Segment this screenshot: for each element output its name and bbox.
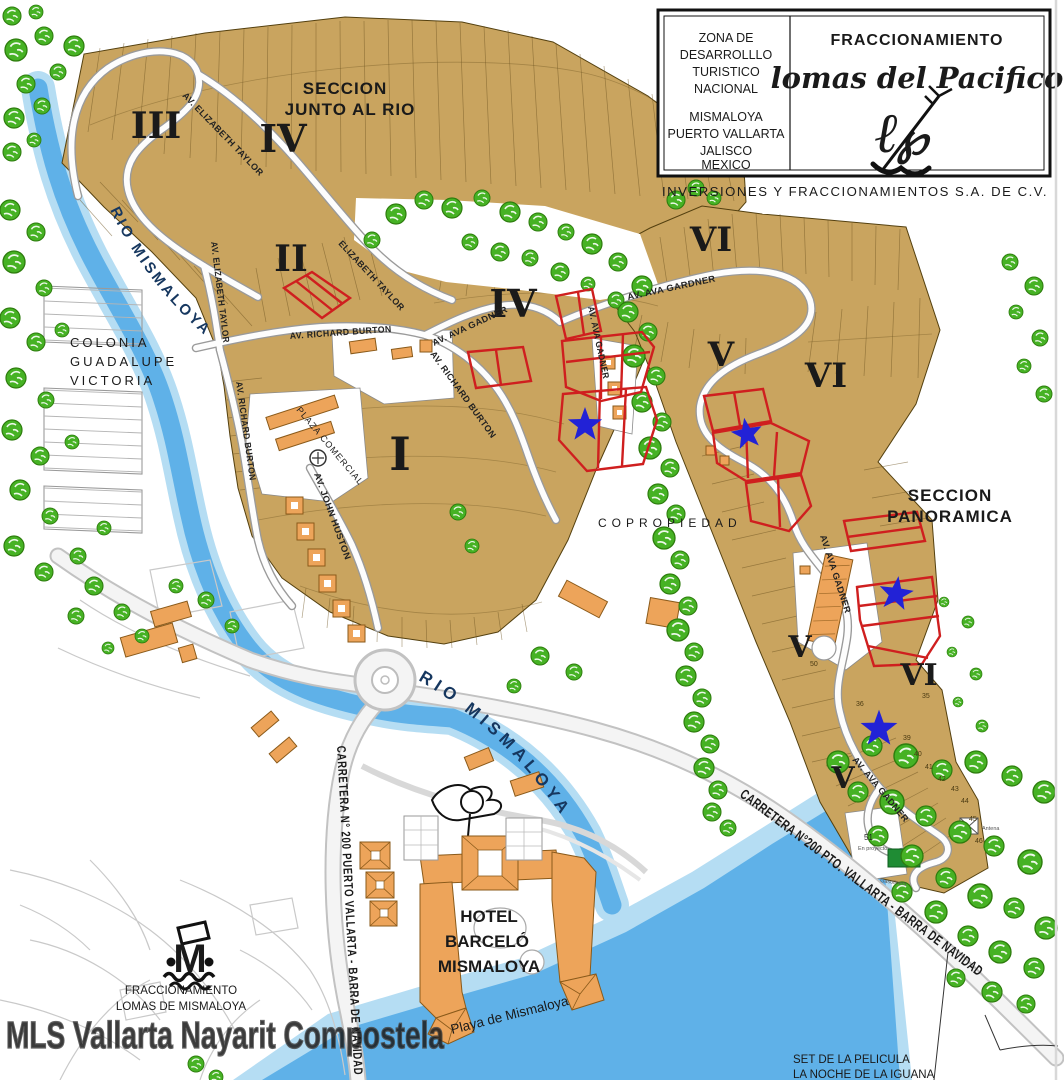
tree-icon xyxy=(209,1070,223,1080)
tree-icon xyxy=(1004,898,1024,918)
lot-number: 36 xyxy=(856,701,864,708)
tree-icon xyxy=(1018,850,1042,874)
tree-icon xyxy=(1024,958,1044,978)
roundabout xyxy=(355,650,415,710)
tree-icon xyxy=(701,735,719,753)
tree-icon xyxy=(27,333,45,351)
title-block: ZONA DE DESARROLLLO TURISTICO NACIONAL M… xyxy=(658,10,1063,199)
lot-number: 45 xyxy=(969,816,977,823)
numeral-v-low: V xyxy=(830,761,855,796)
tree-icon xyxy=(1002,254,1018,270)
tree-icon xyxy=(925,901,947,923)
tree-icon xyxy=(551,263,569,281)
hotel-east-wing xyxy=(552,852,596,982)
section-panoramica-title2: PANORAMICA xyxy=(887,507,1013,526)
tree-icon xyxy=(500,202,520,222)
company-name: INVERSIONES Y FRACCIONAMIENTOS S.A. DE C… xyxy=(662,184,1048,199)
tree-icon xyxy=(2,420,22,440)
lot-number: 44 xyxy=(961,798,969,805)
tree-icon xyxy=(953,697,963,707)
tree-icon xyxy=(694,758,714,778)
tree-icon xyxy=(442,198,462,218)
zone-line: NACIONAL xyxy=(694,82,758,96)
tree-icon xyxy=(529,213,547,231)
tree-icon xyxy=(947,969,965,987)
section-panoramica-title: SECCION xyxy=(908,486,992,505)
tree-icon xyxy=(68,608,84,624)
tree-icon xyxy=(65,435,79,449)
colonia-label-3: VICTORIA xyxy=(70,373,155,388)
tree-icon xyxy=(462,234,478,250)
lot-51-note: En proyecto xyxy=(858,846,887,852)
movie-set-label-1: SET DE LA PELICULA xyxy=(793,1054,910,1066)
tree-icon xyxy=(3,251,25,273)
tree-icon xyxy=(35,563,53,581)
tree-icon xyxy=(684,712,704,732)
subdivision-map: SECCION JUNTO AL RIO SECCION PANORAMICA … xyxy=(0,0,1064,1080)
tree-icon xyxy=(450,504,466,520)
tree-icon xyxy=(3,143,21,161)
tree-icon xyxy=(3,7,21,25)
tree-icon xyxy=(660,574,680,594)
tree-icon xyxy=(50,64,66,80)
lot-number: 35 xyxy=(922,693,930,700)
tree-icon xyxy=(661,459,679,477)
tree-icon xyxy=(522,250,538,266)
hotel-label-2: BARCELÓ xyxy=(445,932,529,951)
movie-set-label-2: LA NOCHE DE LA IGUANA xyxy=(793,1069,935,1080)
tree-icon xyxy=(5,39,27,61)
tree-icon xyxy=(386,204,406,224)
tree-icon xyxy=(27,223,45,241)
tree-icon xyxy=(693,689,711,707)
numeral-iv-top: IV xyxy=(259,116,308,161)
development-name-script: lomas del Pacifico xyxy=(771,61,1064,95)
tree-icon xyxy=(936,868,956,888)
tree-icon xyxy=(465,539,479,553)
frac-mismaloya-label-2: LOMAS DE MISMALOYA xyxy=(116,1001,246,1013)
tree-icon xyxy=(647,367,665,385)
svg-text:℘: ℘ xyxy=(896,114,931,165)
tree-icon xyxy=(916,806,936,826)
tree-icon xyxy=(225,619,239,633)
tree-icon xyxy=(507,679,521,693)
tree-icon xyxy=(0,308,20,328)
place-line: PUERTO VALLARTA xyxy=(668,127,786,141)
tree-icon xyxy=(648,484,668,504)
tree-icon xyxy=(947,647,957,657)
tree-icon xyxy=(64,36,84,56)
tree-icon xyxy=(968,884,992,908)
numeral-vi-top: VI xyxy=(689,220,732,260)
hotel-label-3: MISMALOYA xyxy=(438,957,540,976)
tree-icon xyxy=(1033,781,1055,803)
tree-icon xyxy=(1036,386,1052,402)
tree-icon xyxy=(6,368,26,388)
tree-icon xyxy=(198,592,214,608)
numeral-vi-right: VI xyxy=(899,658,937,693)
tree-icon xyxy=(976,720,988,732)
tree-icon xyxy=(901,845,923,867)
tree-icon xyxy=(1009,305,1023,319)
tree-icon xyxy=(970,668,982,680)
zone-line: TURISTICO xyxy=(692,65,760,79)
tree-icon xyxy=(10,480,30,500)
tree-icon xyxy=(958,926,978,946)
tree-icon xyxy=(17,75,35,93)
tree-icon xyxy=(114,604,130,620)
tree-icon xyxy=(34,98,50,114)
lot-number: 46 xyxy=(975,838,983,845)
tree-icon xyxy=(188,1056,204,1072)
plat-map-page: SECCION JUNTO AL RIO SECCION PANORAMICA … xyxy=(0,0,1064,1080)
numeral-ii: II xyxy=(274,238,308,280)
tree-icon xyxy=(939,597,949,607)
tree-icon xyxy=(582,234,602,254)
tree-icon xyxy=(169,579,183,593)
tree-icon xyxy=(364,232,380,248)
tree-icon xyxy=(989,941,1011,963)
tree-icon xyxy=(962,616,974,628)
svg-text:ℓ: ℓ xyxy=(875,100,899,166)
tree-icon xyxy=(676,666,696,686)
tree-icon xyxy=(1025,277,1043,295)
tree-icon xyxy=(97,521,111,535)
numeral-v-right: V xyxy=(787,630,812,665)
copropiedad-label: COPROPIEDAD xyxy=(598,516,742,530)
tree-icon xyxy=(1035,917,1057,939)
zone-line: DESARROLLLO xyxy=(680,48,773,62)
tree-icon xyxy=(685,643,703,661)
lot-51-number: 51 xyxy=(864,833,873,842)
numeral-vi-mid: VI xyxy=(804,356,847,396)
lot-number: 39 xyxy=(903,735,911,742)
lot-number: 42 xyxy=(938,776,946,783)
lot-number: 40 xyxy=(914,751,922,758)
tree-icon xyxy=(42,508,58,524)
tree-icon xyxy=(720,820,736,836)
tree-icon xyxy=(1017,995,1035,1013)
frac-mismaloya-label-1: FRACCIONAMIENTO xyxy=(125,985,237,997)
hotel-label-1: HOTEL xyxy=(460,907,518,926)
tree-icon xyxy=(0,200,20,220)
place-line: JALISCO xyxy=(700,144,752,158)
tree-icon xyxy=(667,619,689,641)
tree-icon xyxy=(679,597,697,615)
tree-icon xyxy=(36,280,52,296)
tree-icon xyxy=(984,836,1004,856)
tree-icon xyxy=(31,447,49,465)
tree-icon xyxy=(1032,330,1048,346)
lot-number: 43 xyxy=(951,786,959,793)
tree-icon xyxy=(709,781,727,799)
place-line: MISMALOYA xyxy=(689,110,763,124)
tree-icon xyxy=(653,527,675,549)
numeral-i: I xyxy=(389,427,411,481)
colonia-label-2: GUADALUPE xyxy=(70,354,177,369)
tree-icon xyxy=(965,751,987,773)
tree-icon xyxy=(27,133,41,147)
tree-icon xyxy=(415,191,433,209)
tree-icon xyxy=(70,548,86,564)
tree-icon xyxy=(671,551,689,569)
zone-line: ZONA DE xyxy=(699,31,754,45)
section-junto-al-rio-title: SECCION xyxy=(303,79,387,98)
tree-icon xyxy=(531,647,549,665)
tree-icon xyxy=(4,108,24,128)
antena-label: Antena xyxy=(982,826,1000,832)
place-line: MEXICO xyxy=(701,158,751,172)
tree-icon xyxy=(491,243,509,261)
tree-icon xyxy=(609,253,627,271)
tree-icon xyxy=(135,629,149,643)
tree-icon xyxy=(982,982,1002,1002)
tree-icon xyxy=(474,190,490,206)
numeral-iii: III xyxy=(131,105,182,147)
tree-icon xyxy=(35,27,53,45)
tree-icon xyxy=(618,302,638,322)
numeral-iv-mid: IV xyxy=(489,281,538,326)
numeral-v-mid: V xyxy=(707,335,735,375)
colonia-label-1: COLONIA xyxy=(70,335,150,350)
tree-icon xyxy=(29,5,43,19)
tree-icon xyxy=(102,642,114,654)
tree-icon xyxy=(85,577,103,595)
tree-icon xyxy=(566,664,582,680)
tree-icon xyxy=(1002,766,1022,786)
fraccionamiento-heading: FRACCIONAMIENTO xyxy=(831,32,1004,49)
tree-icon xyxy=(558,224,574,240)
lot-number: 41 xyxy=(925,764,933,771)
tree-icon xyxy=(1017,359,1031,373)
tree-icon xyxy=(4,536,24,556)
lot-number: 50 xyxy=(810,661,818,668)
tree-icon xyxy=(703,803,721,821)
tree-icon xyxy=(949,821,971,843)
tree-icon xyxy=(38,392,54,408)
tree-icon xyxy=(55,323,69,337)
mls-watermark: MLS Vallarta Nayarit Compostela xyxy=(6,1015,445,1057)
